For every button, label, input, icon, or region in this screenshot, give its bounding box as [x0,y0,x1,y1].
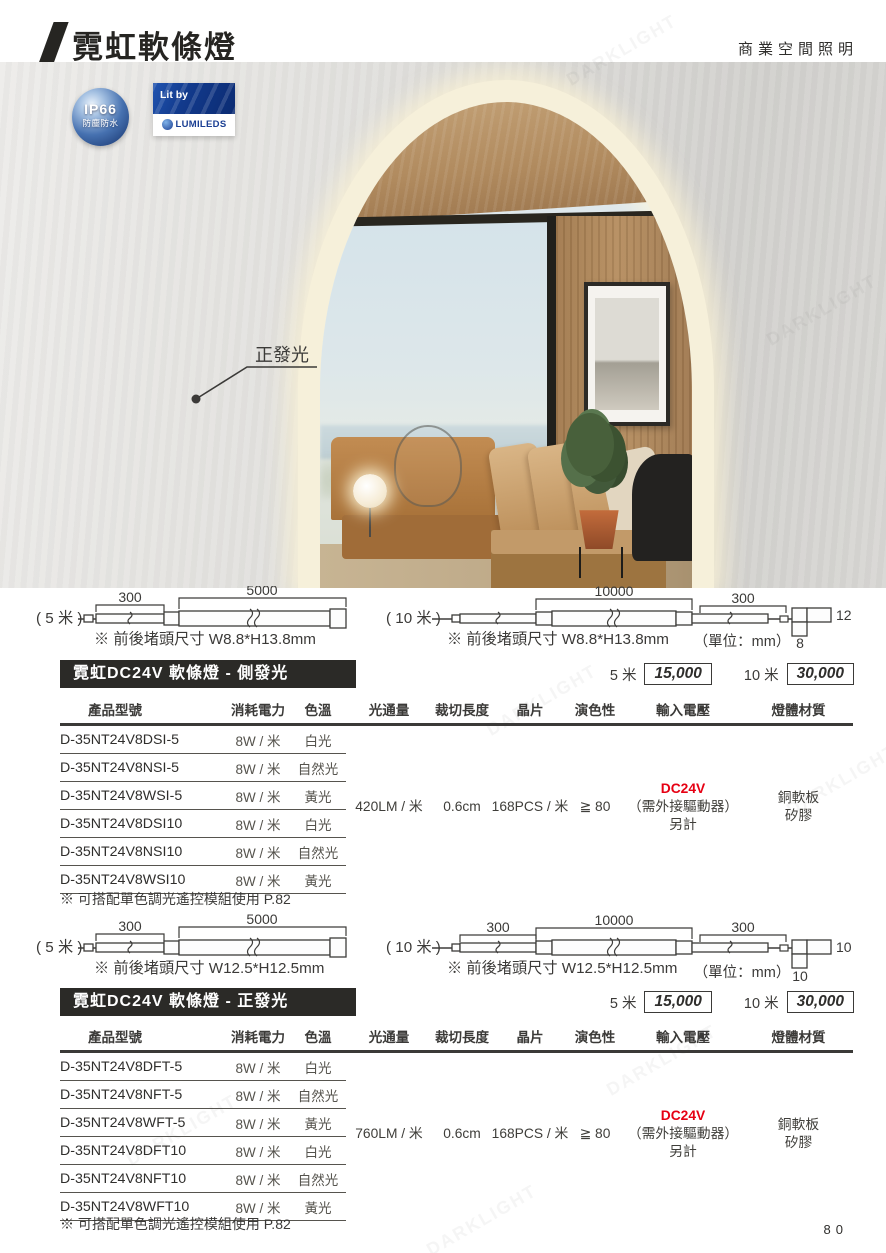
col-header: 光通量 [346,1026,432,1046]
table-row: D-35NT24V8NFT108W / 米自然光 [60,1165,346,1193]
lumen-value: 420LM / 米 [346,726,432,888]
lumileds-wordmark: LUMILEDS [176,119,227,130]
table-row: D-35NT24V8WFT-58W / 米黃光 [60,1109,346,1137]
cri-value: ≧ 80 [568,726,622,888]
cross-section-width: 10 [836,939,852,955]
framed-picture [584,282,670,426]
col-header: 晶片 [492,1026,568,1046]
table-header-row: 產品型號 消耗電力 色溫 光通量 裁切長度 晶片 演色性 輸入電壓 燈體材質 [60,695,853,726]
table-body: D-35NT24V8DFT-58W / 米白光 D-35NT24V8NFT-58… [60,1053,853,1215]
cut-length-value: 0.6cm [432,1053,492,1215]
price-10m-value: 30,000 [787,991,854,1013]
diagram-5m-label: ( 5 米 ) [36,939,82,956]
price-10m-label: 10 米 [744,664,779,685]
dim-10000: 10000 [595,586,634,599]
voltage-extra-note: 另計 [669,816,697,834]
voltage-driver-note: （需外接驅動器） [628,1125,738,1143]
col-header: 輸入電壓 [622,1026,744,1046]
plant-stand [579,547,624,579]
dim-300-left: 300 [486,919,510,935]
dim-300: 300 [118,918,142,934]
table-row: D-35NT24V8NSI-58W / 米自然光 [60,754,346,782]
shared-spec-values: 760LM / 米 0.6cm 168PCS / 米 ≧ 80 DC24V （需… [346,1053,853,1215]
col-header: 晶片 [492,699,568,719]
col-header: 裁切長度 [432,699,492,719]
price-5m-value: 15,000 [644,991,711,1013]
table-row: D-35NT24V8NFT-58W / 米自然光 [60,1081,346,1109]
spec-table-front: 產品型號 消耗電力 色溫 光通量 裁切長度 晶片 演色性 輸入電壓 燈體材質 D… [60,1022,853,1215]
price-5m-label: 5 米 [610,992,637,1013]
price-5m-value: 15,000 [644,663,711,685]
lit-by-label: Lit by [160,89,188,101]
col-header: 裁切長度 [432,1026,492,1046]
endcap-note-10m: ※ 前後堵頭尺寸 W12.5*H12.5mm [447,960,677,977]
col-header: 產品型號 [60,1026,226,1046]
col-header: 燈體材質 [744,1026,853,1046]
page-title: 霓虹軟條燈 [72,22,237,67]
dim-300-right: 300 [731,590,755,606]
lamp-stem [369,503,371,537]
wood-ceiling [320,102,692,224]
dimmer-note-front: ※ 可搭配單色調光遙控模組使用 P.82 [60,1214,291,1234]
endcap-note-5m: ※ 前後堵頭尺寸 W8.8*H13.8mm [94,631,316,648]
dim-5000: 5000 [246,911,277,927]
black-chair [632,454,692,561]
lumileds-badge: Lit by LUMILEDS [153,83,235,136]
wire-chair [394,425,461,507]
col-header: 演色性 [568,699,622,719]
col-header: 輸入電壓 [622,699,744,719]
price-10m-label: 10 米 [744,992,779,1013]
col-header: 消耗電力 [226,699,290,719]
table-row: D-35NT24V8NSI108W / 米自然光 [60,838,346,866]
table-row: D-35NT24V8DFT108W / 米白光 [60,1137,346,1165]
unit-label: （單位：mm） [694,633,791,650]
col-header: 消耗電力 [226,1026,290,1046]
shared-spec-values: 420LM / 米 0.6cm 168PCS / 米 ≧ 80 DC24V （需… [346,726,853,888]
diagram-5m-label: ( 5 米 ) [36,610,82,627]
potted-plant-foliage [566,413,614,476]
col-header: 色溫 [290,699,346,719]
dimension-diagram-front: ( 5 米 ) 300 5000 ※ 前後堵頭尺寸 W12.5*H12.5mm … [0,911,886,987]
cross-section-height: 10 [792,968,808,984]
dim-300-right: 300 [731,919,755,935]
lumen-value: 760LM / 米 [346,1053,432,1215]
dim-300: 300 [118,589,142,605]
voltage-value: DC24V （需外接驅動器） 另計 [622,1053,744,1215]
title-slash-mark [38,22,68,64]
table-body: D-35NT24V8DSI-58W / 米白光 D-35NT24V8NSI-58… [60,726,853,888]
material-value: 銅軟板 矽膠 [744,726,853,888]
table-row: D-35NT24V8DFT-58W / 米白光 [60,1053,346,1081]
dim-10000: 10000 [595,912,634,928]
cross-section-width: 12 [836,607,852,623]
hero-photo: IP66 防塵防水 Lit by LUMILEDS 正發光 [0,62,886,588]
spec-table-side: 產品型號 消耗電力 色溫 光通量 裁切長度 晶片 演色性 輸入電壓 燈體材質 D… [60,695,853,888]
unit-label: （單位：mm） [694,964,791,981]
picture-art [595,298,659,410]
page-number: 80 [824,1222,848,1237]
price-5m-label: 5 米 [610,664,637,685]
chip-value: 168PCS / 米 [492,726,568,888]
cri-value: ≧ 80 [568,1053,622,1215]
table-row: D-35NT24V8DSI-58W / 米白光 [60,726,346,754]
price-row-side: 5 米 15,000 10 米 30,000 [554,661,854,687]
table-header-row: 產品型號 消耗電力 色溫 光通量 裁切長度 晶片 演色性 輸入電壓 燈體材質 [60,1022,853,1053]
col-header: 演色性 [568,1026,622,1046]
table-row: D-35NT24V8DSI108W / 米白光 [60,810,346,838]
col-header: 光通量 [346,699,432,719]
voltage-value: DC24V （需外接驅動器） 另計 [622,726,744,888]
dimension-diagram-side: ( 5 米 ) 300 5000 ※ 前後堵頭尺寸 W8.8*H13.8mm (… [0,586,886,658]
dim-5000: 5000 [246,586,277,598]
endcap-note-10m: ※ 前後堵頭尺寸 W8.8*H13.8mm [447,631,669,648]
material-value: 銅軟板 矽膠 [744,1053,853,1215]
section-title-front: 霓虹DC24V 軟條燈 - 正發光 [60,988,356,1016]
chip-value: 168PCS / 米 [492,1053,568,1215]
ip66-badge: IP66 防塵防水 [72,88,129,146]
lumileds-logo-icon [162,119,173,130]
voltage-dc24v: DC24V [661,780,705,798]
cross-section-height: 8 [796,635,804,651]
price-10m-value: 30,000 [787,663,854,685]
category-label: 商業空間照明 [738,38,858,59]
dimmer-note-side: ※ 可搭配單色調光遙控模組使用 P.82 [60,889,291,909]
col-header: 色溫 [290,1026,346,1046]
lumileds-badge-bottom: LUMILEDS [153,114,235,136]
price-row-front: 5 米 15,000 10 米 30,000 [554,989,854,1015]
catalog-page: 霓虹軟條燈 商業空間照明 [0,0,886,1253]
ip66-badge-title: IP66 [72,101,129,117]
voltage-extra-note: 另計 [669,1143,697,1161]
col-header: 燈體材質 [744,699,853,719]
section-title-side: 霓虹DC24V 軟條燈 - 側發光 [60,660,356,688]
ip66-badge-subtitle: 防塵防水 [72,117,129,129]
voltage-dc24v: DC24V [661,1107,705,1125]
col-header: 產品型號 [60,699,226,719]
voltage-driver-note: （需外接驅動器） [628,798,738,816]
endcap-note-5m: ※ 前後堵頭尺寸 W12.5*H12.5mm [94,960,324,977]
cut-length-value: 0.6cm [432,726,492,888]
sphere-lamp [353,474,387,508]
table-row: D-35NT24V8WSI-58W / 米黃光 [60,782,346,810]
arch-opening [320,102,692,588]
